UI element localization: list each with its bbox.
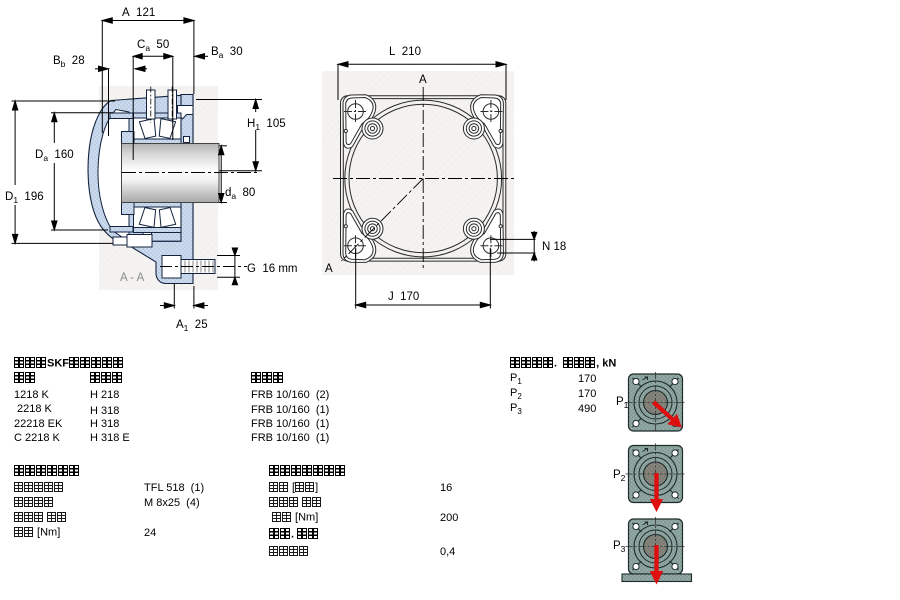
svg-text:P2: P2 [613,469,626,483]
svg-text:H1 105: H1 105 [247,118,286,132]
svg-text:Ba 30: Ba 30 [211,46,243,60]
svg-text:A: A [419,74,427,86]
svg-text:N 18: N 18 [542,241,566,253]
svg-text:G 16 mm: G 16 mm [247,263,297,275]
svg-text:A - A: A - A [120,272,145,284]
svg-text:J 170: J 170 [388,291,419,303]
svg-text:Ca 50: Ca 50 [137,39,169,53]
svg-text:L 210: L 210 [389,46,421,58]
svg-text:da 80: da 80 [225,187,255,201]
svg-text:D1 196: D1 196 [5,191,44,205]
svg-text:A 121: A 121 [122,7,155,19]
svg-text:P1: P1 [616,396,629,410]
svg-text:Da 160: Da 160 [35,149,74,163]
svg-text:A: A [325,263,333,275]
svg-text:A1 25: A1 25 [176,319,208,333]
svg-text:Bb 28: Bb 28 [53,55,85,69]
svg-text:P3: P3 [613,540,626,554]
